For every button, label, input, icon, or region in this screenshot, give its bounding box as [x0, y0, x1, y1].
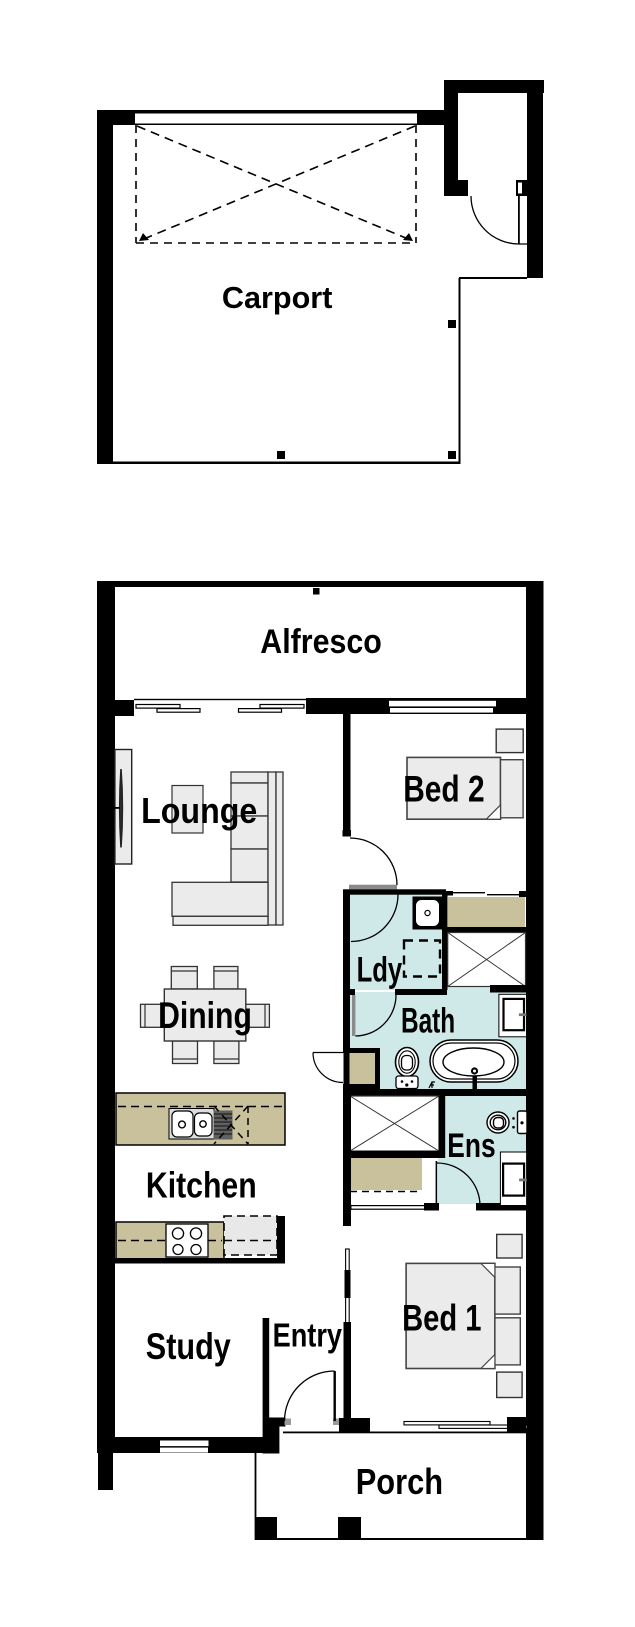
svg-text:Kitchen: Kitchen	[146, 1165, 257, 1206]
svg-text:Study: Study	[146, 1326, 231, 1367]
svg-text:Porch: Porch	[356, 1461, 443, 1502]
svg-text:Alfresco: Alfresco	[260, 623, 382, 661]
svg-text:Carport: Carport	[222, 280, 333, 315]
svg-text:Ldy: Ldy	[357, 950, 403, 989]
svg-text:Entry: Entry	[273, 1317, 343, 1354]
svg-text:Bed 1: Bed 1	[402, 1297, 481, 1338]
svg-text:Lounge: Lounge	[141, 790, 257, 831]
svg-text:Ens: Ens	[447, 1127, 495, 1165]
svg-text:Bed 2: Bed 2	[403, 769, 484, 810]
svg-text:Bath: Bath	[401, 1002, 455, 1041]
svg-text:Dining: Dining	[158, 995, 252, 1036]
